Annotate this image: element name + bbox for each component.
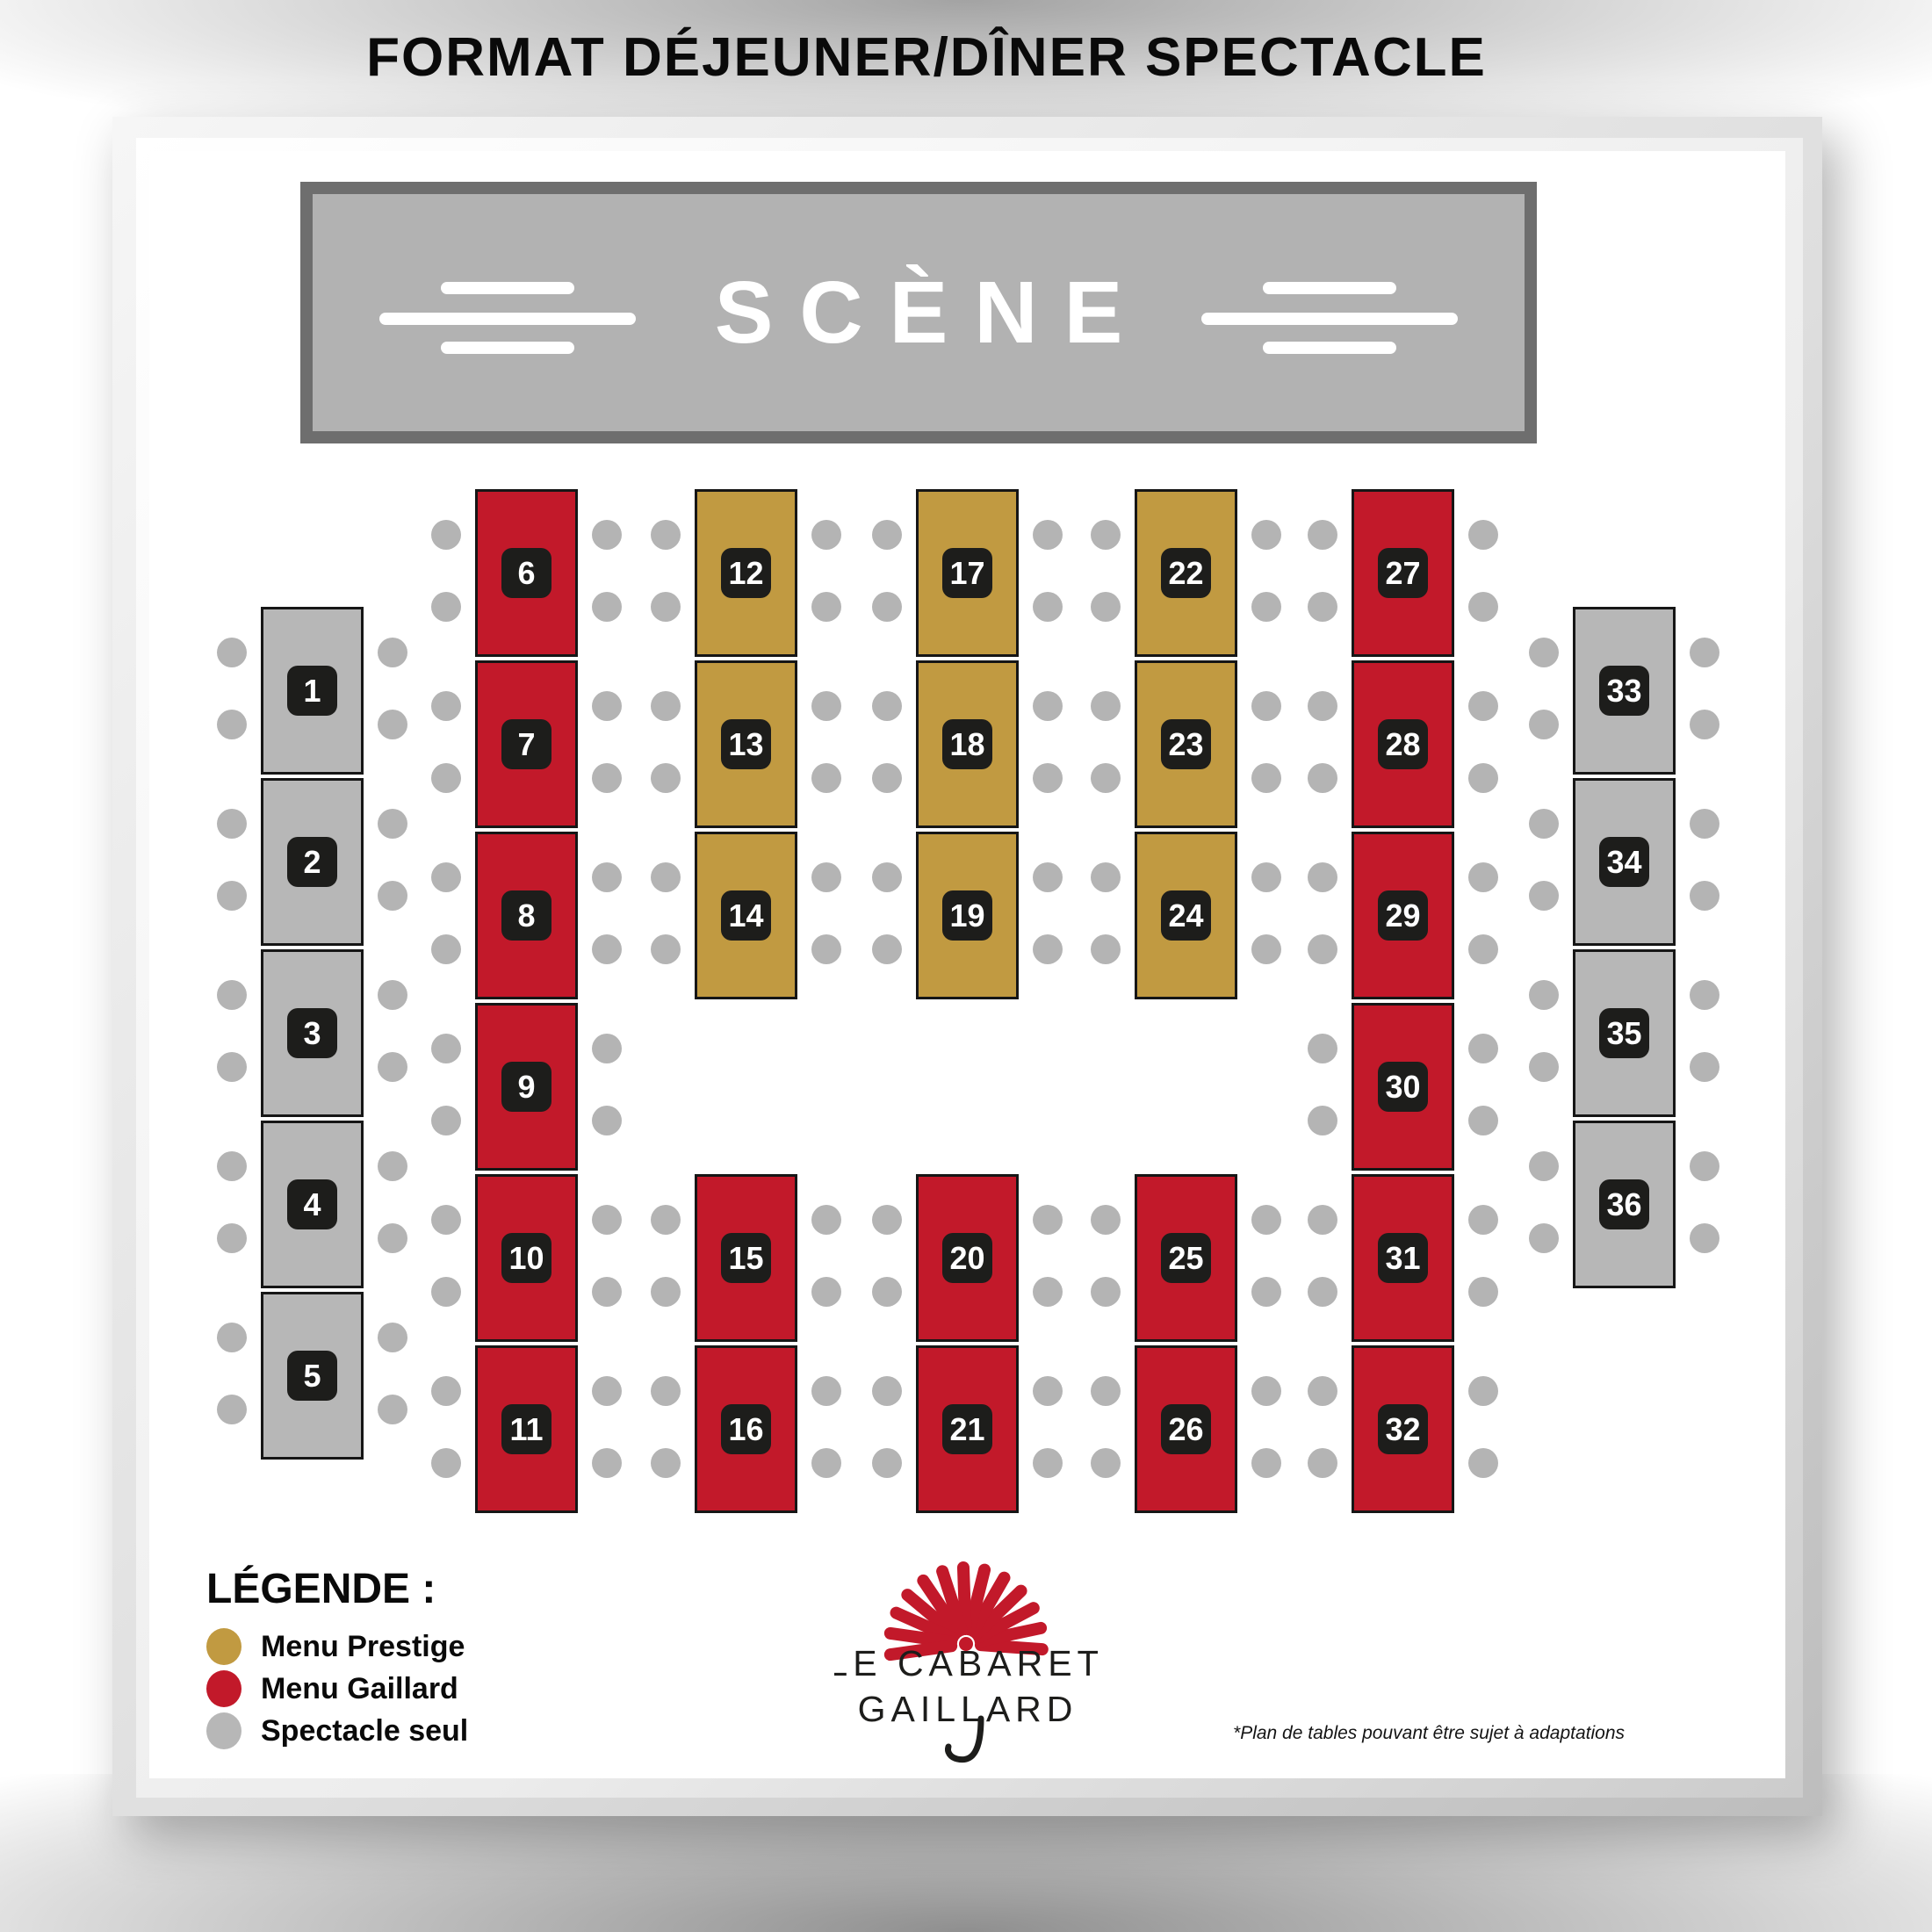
chair-dot [1468, 592, 1498, 622]
stage-line [441, 282, 574, 294]
table-9: 9 [475, 1003, 578, 1171]
table-17: 17 [916, 489, 1019, 657]
table-34: 34 [1573, 778, 1676, 946]
chair-dot [651, 1277, 681, 1307]
table-26: 26 [1135, 1345, 1237, 1513]
table-number-badge: 1 [287, 666, 337, 716]
chair-dot [1091, 520, 1121, 550]
chair-dot [1468, 934, 1498, 964]
chair-dot [1251, 520, 1281, 550]
table-24: 24 [1135, 832, 1237, 999]
table-number-badge: 28 [1378, 719, 1428, 769]
chair-dot [872, 1448, 902, 1478]
chair-dot [1468, 763, 1498, 793]
chair-dot [1690, 980, 1719, 1010]
stage-line [379, 313, 636, 325]
table-number-badge: 14 [721, 890, 771, 941]
chair-dot [811, 1205, 841, 1235]
legend: LÉGENDE : Menu PrestigeMenu GaillardSpec… [206, 1565, 468, 1752]
table-16: 16 [695, 1345, 797, 1513]
logo-line1: LE CABARET [834, 1643, 1098, 1683]
legend-heading: LÉGENDE : [206, 1565, 468, 1613]
table-21: 21 [916, 1345, 1019, 1513]
chair-dot [1308, 520, 1337, 550]
chair-dot [811, 934, 841, 964]
chair-dot [431, 1277, 461, 1307]
chair-dot [378, 638, 407, 667]
table-number-badge: 31 [1378, 1233, 1428, 1283]
chair-dot [1091, 1277, 1121, 1307]
chair-dot [217, 638, 247, 667]
legend-swatch-prestige [206, 1628, 241, 1665]
table-number-badge: 30 [1378, 1062, 1428, 1112]
chair-dot [651, 1205, 681, 1235]
table-number-badge: 35 [1599, 1008, 1649, 1058]
chair-dot [1529, 1151, 1559, 1181]
chair-dot [1468, 1277, 1498, 1307]
table-28: 28 [1352, 660, 1454, 828]
legend-item-prestige: Menu Prestige [206, 1626, 468, 1668]
chair-dot [431, 592, 461, 622]
chair-dot [1468, 862, 1498, 892]
chair-dot [1468, 1034, 1498, 1063]
chair-dot [1033, 862, 1063, 892]
chair-dot [217, 809, 247, 839]
table-number-badge: 7 [501, 719, 551, 769]
chair-dot [651, 520, 681, 550]
table-number-badge: 8 [501, 890, 551, 941]
chair-dot [592, 1277, 622, 1307]
chair-dot [1308, 691, 1337, 721]
table-6: 6 [475, 489, 578, 657]
table-number-badge: 9 [501, 1062, 551, 1112]
table-number-badge: 18 [942, 719, 992, 769]
chair-dot [1529, 881, 1559, 911]
chair-dot [1091, 1448, 1121, 1478]
chair-dot [1251, 1277, 1281, 1307]
table-number-badge: 26 [1161, 1404, 1211, 1454]
chair-dot [1251, 1376, 1281, 1406]
chair-dot [1690, 1052, 1719, 1082]
chair-dot [1091, 763, 1121, 793]
table-36: 36 [1573, 1121, 1676, 1288]
chair-dot [811, 1277, 841, 1307]
table-number-badge: 36 [1599, 1179, 1649, 1229]
chair-dot [1690, 809, 1719, 839]
chair-dot [431, 1034, 461, 1063]
chair-dot [217, 1323, 247, 1352]
chair-dot [378, 1151, 407, 1181]
table-7: 7 [475, 660, 578, 828]
chair-dot [651, 934, 681, 964]
chair-dot [1033, 520, 1063, 550]
table-10: 10 [475, 1174, 578, 1342]
chair-dot [651, 1376, 681, 1406]
chair-dot [217, 710, 247, 739]
table-25: 25 [1135, 1174, 1237, 1342]
table-number-badge: 16 [721, 1404, 771, 1454]
chair-dot [1091, 592, 1121, 622]
table-15: 15 [695, 1174, 797, 1342]
chair-dot [592, 1376, 622, 1406]
chair-dot [1033, 763, 1063, 793]
chair-dot [1308, 1205, 1337, 1235]
chair-dot [651, 592, 681, 622]
chair-dot [651, 1448, 681, 1478]
chair-dot [431, 763, 461, 793]
cabaret-logo-graphic: LE CABARET GAILLARD [834, 1532, 1098, 1787]
chair-dot [592, 691, 622, 721]
table-number-badge: 29 [1378, 890, 1428, 941]
chair-dot [1308, 763, 1337, 793]
chair-dot [872, 592, 902, 622]
chair-dot [651, 763, 681, 793]
table-number-badge: 34 [1599, 837, 1649, 887]
chair-dot [1690, 638, 1719, 667]
chair-dot [1468, 1448, 1498, 1478]
table-32: 32 [1352, 1345, 1454, 1513]
chair-dot [592, 520, 622, 550]
table-4: 4 [261, 1121, 364, 1288]
chair-dot [1251, 1205, 1281, 1235]
chair-dot [1308, 1277, 1337, 1307]
table-number-badge: 12 [721, 548, 771, 598]
chair-dot [1690, 1223, 1719, 1253]
chair-dot [811, 763, 841, 793]
logo: LE CABARET GAILLARD [834, 1532, 1098, 1787]
table-12: 12 [695, 489, 797, 657]
table-31: 31 [1352, 1174, 1454, 1342]
chair-dot [1308, 1376, 1337, 1406]
chair-dot [1690, 710, 1719, 739]
logo-line2: GAILLARD [858, 1689, 1078, 1729]
chair-dot [651, 691, 681, 721]
table-number-badge: 24 [1161, 890, 1211, 941]
chair-dot [592, 592, 622, 622]
chair-dot [592, 862, 622, 892]
chair-dot [378, 809, 407, 839]
table-number-badge: 5 [287, 1351, 337, 1401]
table-14: 14 [695, 832, 797, 999]
chair-dot [1308, 1034, 1337, 1063]
table-13: 13 [695, 660, 797, 828]
legend-item-spectacle: Spectacle seul [206, 1710, 468, 1752]
table-number-badge: 17 [942, 548, 992, 598]
chair-dot [1251, 691, 1281, 721]
chair-dot [872, 763, 902, 793]
chair-dot [1033, 1205, 1063, 1235]
table-11: 11 [475, 1345, 578, 1513]
chair-dot [1091, 691, 1121, 721]
table-number-badge: 32 [1378, 1404, 1428, 1454]
table-number-badge: 21 [942, 1404, 992, 1454]
chair-dot [1308, 1106, 1337, 1135]
table-35: 35 [1573, 949, 1676, 1117]
chair-dot [1033, 1448, 1063, 1478]
stage-line [441, 342, 574, 354]
chair-dot [872, 1376, 902, 1406]
table-19: 19 [916, 832, 1019, 999]
chair-dot [1033, 1277, 1063, 1307]
chair-dot [811, 1376, 841, 1406]
chair-dot [217, 1052, 247, 1082]
legend-item-gaillard: Menu Gaillard [206, 1668, 468, 1710]
table-29: 29 [1352, 832, 1454, 999]
chair-dot [1690, 1151, 1719, 1181]
table-number-badge: 20 [942, 1233, 992, 1283]
table-1: 1 [261, 607, 364, 775]
table-3: 3 [261, 949, 364, 1117]
chair-dot [811, 520, 841, 550]
table-number-badge: 4 [287, 1179, 337, 1229]
chair-dot [217, 980, 247, 1010]
chair-dot [378, 1223, 407, 1253]
chair-dot [1468, 1106, 1498, 1135]
chair-dot [431, 1376, 461, 1406]
stage-line [1263, 282, 1396, 294]
chair-dot [592, 1448, 622, 1478]
chair-dot [378, 710, 407, 739]
legend-label: Menu Prestige [261, 1630, 465, 1664]
chair-dot [1091, 862, 1121, 892]
chair-dot [592, 1034, 622, 1063]
table-22: 22 [1135, 489, 1237, 657]
chair-dot [431, 862, 461, 892]
chair-dot [378, 881, 407, 911]
chair-dot [1529, 710, 1559, 739]
chair-dot [1529, 638, 1559, 667]
table-number-badge: 13 [721, 719, 771, 769]
legend-swatch-spectacle [206, 1712, 241, 1749]
chair-dot [1091, 934, 1121, 964]
table-number-badge: 15 [721, 1233, 771, 1283]
legend-items: Menu PrestigeMenu GaillardSpectacle seul [206, 1626, 468, 1752]
chair-dot [217, 1151, 247, 1181]
table-number-badge: 2 [287, 837, 337, 887]
chair-dot [1251, 862, 1281, 892]
table-23: 23 [1135, 660, 1237, 828]
table-number-badge: 23 [1161, 719, 1211, 769]
chair-dot [1529, 1223, 1559, 1253]
chair-dot [811, 592, 841, 622]
chair-dot [872, 1205, 902, 1235]
chair-dot [651, 862, 681, 892]
chair-dot [872, 1277, 902, 1307]
chair-dot [811, 691, 841, 721]
chair-dot [378, 1052, 407, 1082]
chair-dot [1468, 1376, 1498, 1406]
chair-dot [872, 934, 902, 964]
chair-dot [378, 1395, 407, 1424]
table-number-badge: 10 [501, 1233, 551, 1283]
chair-dot [431, 1205, 461, 1235]
table-number-badge: 22 [1161, 548, 1211, 598]
table-27: 27 [1352, 489, 1454, 657]
chair-dot [217, 1223, 247, 1253]
chair-dot [1033, 1376, 1063, 1406]
chair-dot [1529, 809, 1559, 839]
table-number-badge: 3 [287, 1008, 337, 1058]
chair-dot [1468, 691, 1498, 721]
chair-dot [1468, 1205, 1498, 1235]
chair-dot [431, 934, 461, 964]
table-number-badge: 33 [1599, 666, 1649, 716]
table-8: 8 [475, 832, 578, 999]
chair-dot [431, 691, 461, 721]
chair-dot [592, 1205, 622, 1235]
chair-dot [1529, 1052, 1559, 1082]
stage-line [1201, 313, 1458, 325]
footnote: *Plan de tables pouvant être sujet à ada… [1107, 1723, 1625, 1744]
chair-dot [378, 1323, 407, 1352]
legend-swatch-gaillard [206, 1670, 241, 1707]
chair-dot [1091, 1376, 1121, 1406]
chair-dot [1033, 934, 1063, 964]
table-5: 5 [261, 1292, 364, 1460]
chair-dot [811, 1448, 841, 1478]
chair-dot [1251, 934, 1281, 964]
chair-dot [1308, 592, 1337, 622]
chair-dot [1091, 1205, 1121, 1235]
stage-line [1263, 342, 1396, 354]
chair-dot [217, 881, 247, 911]
chair-dot [592, 763, 622, 793]
chair-dot [872, 862, 902, 892]
chair-dot [1468, 520, 1498, 550]
chair-dot [1251, 1448, 1281, 1478]
chair-dot [872, 520, 902, 550]
table-30: 30 [1352, 1003, 1454, 1171]
table-18: 18 [916, 660, 1019, 828]
chair-dot [431, 520, 461, 550]
table-20: 20 [916, 1174, 1019, 1342]
table-number-badge: 25 [1161, 1233, 1211, 1283]
table-number-badge: 19 [942, 890, 992, 941]
table-number-badge: 11 [501, 1404, 551, 1454]
chair-dot [1308, 862, 1337, 892]
chair-dot [592, 1106, 622, 1135]
legend-label: Spectacle seul [261, 1714, 468, 1748]
chair-dot [592, 934, 622, 964]
chair-dot [1033, 691, 1063, 721]
table-number-badge: 27 [1378, 548, 1428, 598]
table-33: 33 [1573, 607, 1676, 775]
chair-dot [1308, 934, 1337, 964]
chair-dot [1251, 592, 1281, 622]
chair-dot [1529, 980, 1559, 1010]
table-2: 2 [261, 778, 364, 946]
table-number-badge: 6 [501, 548, 551, 598]
chair-dot [1690, 881, 1719, 911]
chair-dot [431, 1448, 461, 1478]
chair-dot [378, 980, 407, 1010]
legend-label: Menu Gaillard [261, 1672, 458, 1706]
chair-dot [811, 862, 841, 892]
chair-dot [1251, 763, 1281, 793]
chair-dot [1033, 592, 1063, 622]
chair-dot [431, 1106, 461, 1135]
page-title: FORMAT DÉJEUNER/DÎNER SPECTACLE [342, 26, 1510, 89]
chair-dot [1308, 1448, 1337, 1478]
chair-dot [217, 1395, 247, 1424]
chair-dot [872, 691, 902, 721]
